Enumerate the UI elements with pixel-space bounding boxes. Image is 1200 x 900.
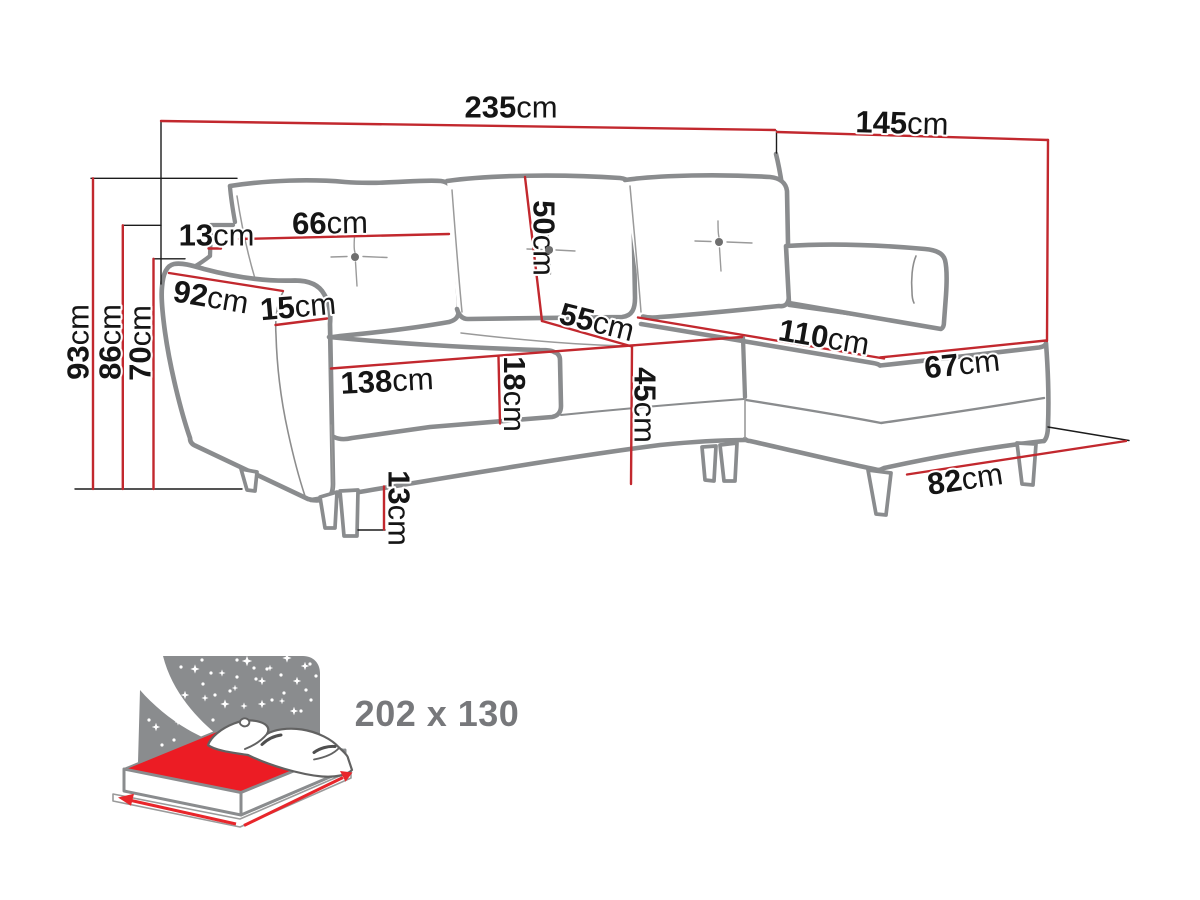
svg-text:93cm: 93cm <box>61 304 96 380</box>
svg-text:45cm: 45cm <box>628 367 663 443</box>
svg-text:138cm: 138cm <box>340 361 435 401</box>
svg-text:66cm: 66cm <box>292 205 368 241</box>
svg-text:70cm: 70cm <box>123 305 158 381</box>
svg-text:235cm: 235cm <box>464 90 557 125</box>
svg-text:13cm: 13cm <box>382 470 417 546</box>
svg-text:13cm: 13cm <box>179 218 255 253</box>
svg-text:18cm: 18cm <box>497 356 532 432</box>
svg-text:145cm: 145cm <box>855 104 949 141</box>
svg-text:50cm: 50cm <box>527 200 562 276</box>
svg-text:15cm: 15cm <box>259 286 338 327</box>
svg-text:202 x 130: 202 x 130 <box>355 693 520 734</box>
